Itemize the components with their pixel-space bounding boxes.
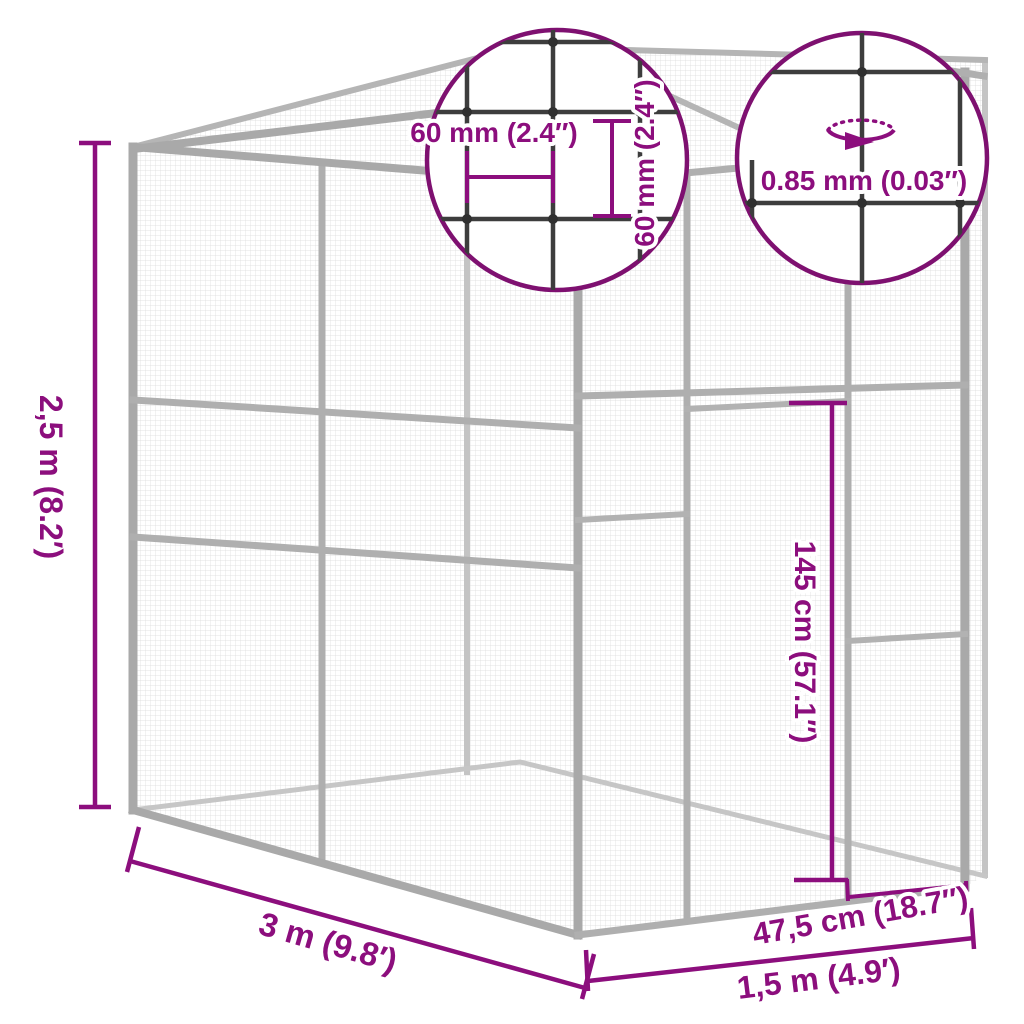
wire-gauge-detail-circle: 0.85 mm (0.03″) [735, 31, 988, 285]
height-dimension-line [79, 143, 111, 807]
wire-gauge-label: 0.85 mm (0.03″) [761, 165, 967, 196]
door-height-dimension-label: 145 cm (57.1″) [788, 541, 821, 744]
mesh-pitch-horizontal-label: 60 mm (2.4″) [410, 117, 577, 148]
mesh-pitch-vertical-label: 60 mm (2.4″) [629, 79, 660, 246]
depth-dimension-label: 1,5 m (4.9′) [735, 950, 902, 1006]
height-dimension-label: 2,5 m (8.2′) [33, 395, 69, 559]
diagram-canvas: 2,5 m (8.2′) 3 m (9.8′) 1,5 m (4.9′) 47,… [0, 0, 1024, 1024]
cat-enclosure-dimension-diagram: 2,5 m (8.2′) 3 m (9.8′) 1,5 m (4.9′) 47,… [0, 0, 1024, 1024]
height-dimension: 2,5 m (8.2′) [33, 143, 111, 807]
